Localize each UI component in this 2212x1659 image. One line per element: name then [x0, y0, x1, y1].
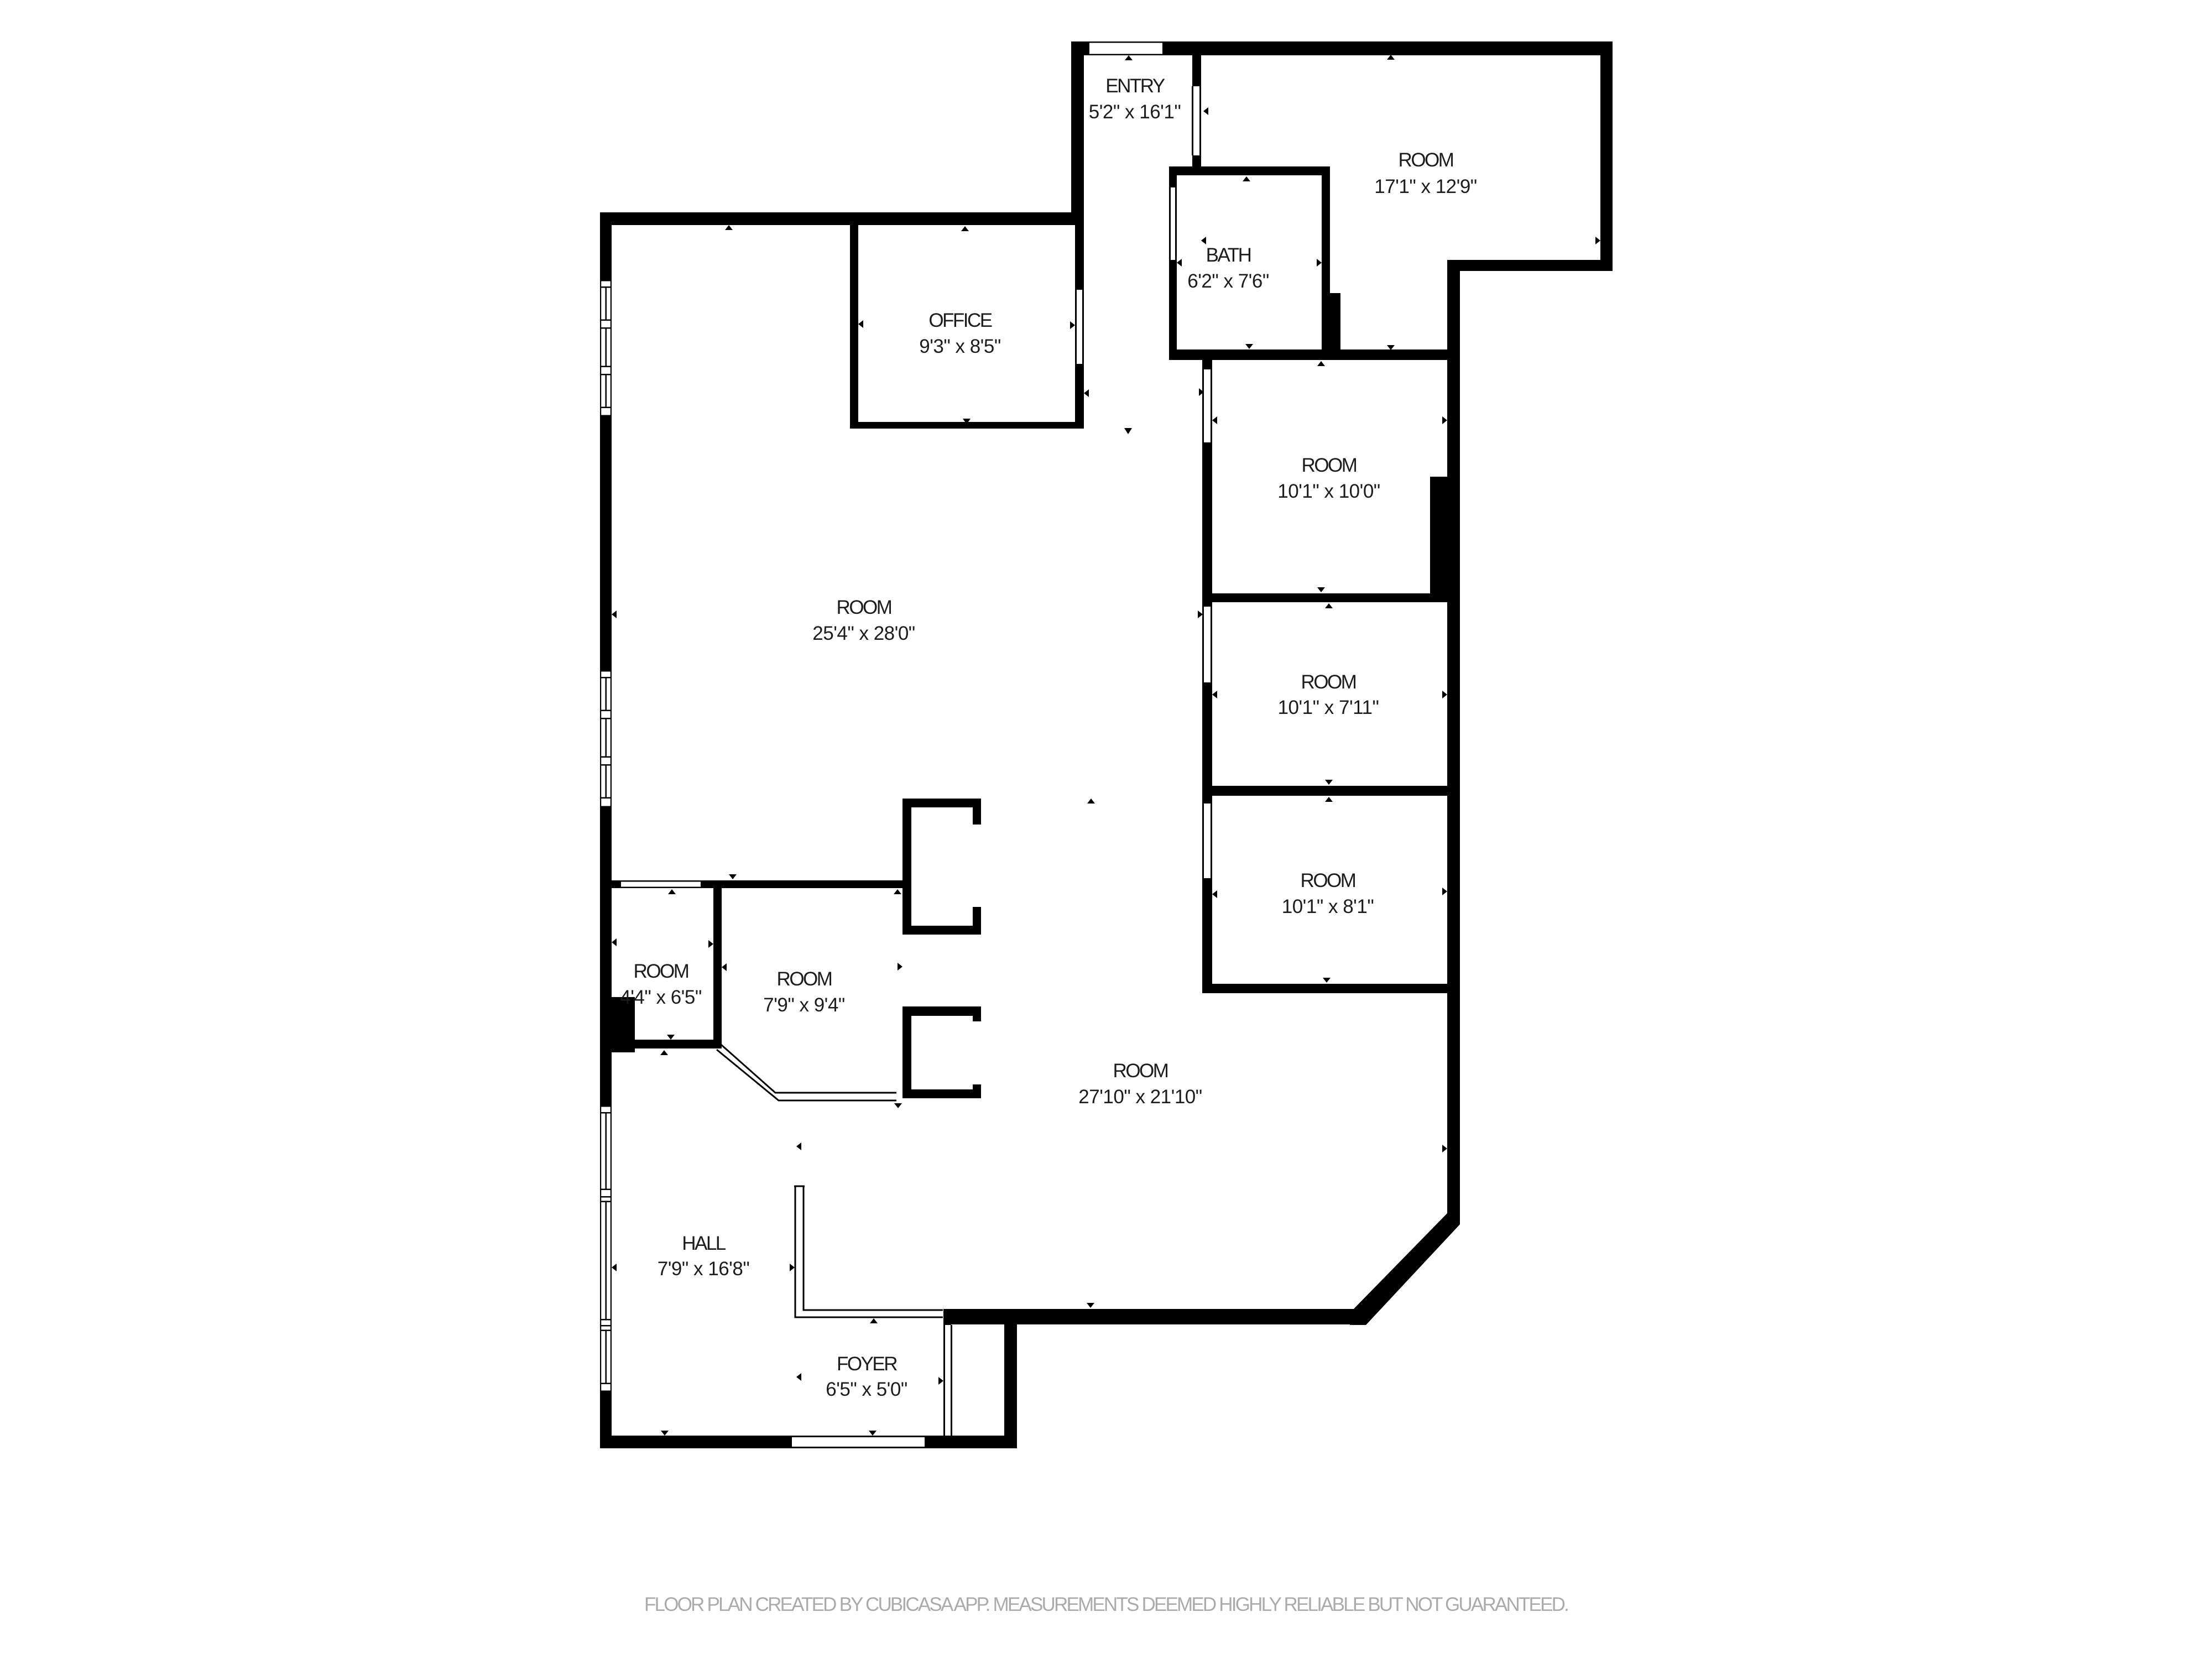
svg-text:ROOM: ROOM	[777, 968, 832, 990]
svg-text:ROOM: ROOM	[1399, 149, 1453, 171]
svg-text:7'9" x 9'4": 7'9" x 9'4"	[763, 994, 845, 1016]
svg-text:BATH: BATH	[1206, 244, 1251, 266]
svg-text:HALL: HALL	[682, 1233, 726, 1254]
svg-text:7'9" x 16'8": 7'9" x 16'8"	[658, 1258, 750, 1280]
svg-text:9'3" x 8'5": 9'3" x 8'5"	[919, 336, 1001, 357]
svg-text:25'4" x 28'0": 25'4" x 28'0"	[812, 623, 915, 644]
svg-text:10'1" x 7'11": 10'1" x 7'11"	[1278, 697, 1379, 718]
svg-text:5'2" x 16'1": 5'2" x 16'1"	[1089, 101, 1181, 123]
svg-text:ROOM: ROOM	[1301, 671, 1356, 693]
svg-text:FOYER: FOYER	[837, 1353, 897, 1375]
svg-text:ROOM: ROOM	[1301, 870, 1355, 891]
svg-text:10'1" x 8'1": 10'1" x 8'1"	[1282, 896, 1374, 917]
svg-text:ROOM: ROOM	[837, 597, 891, 618]
svg-text:6'5" x 5'0": 6'5" x 5'0"	[826, 1379, 907, 1400]
svg-text:10'1" x 10'0": 10'1" x 10'0"	[1277, 481, 1380, 502]
svg-text:ROOM: ROOM	[1113, 1060, 1168, 1082]
svg-text:27'10" x 21'10": 27'10" x 21'10"	[1078, 1086, 1202, 1108]
svg-text:ENTRY: ENTRY	[1105, 75, 1165, 97]
svg-text:ROOM: ROOM	[634, 961, 688, 982]
svg-text:ROOM: ROOM	[1302, 455, 1357, 476]
svg-text:4'4" x 6'5": 4'4" x 6'5"	[620, 987, 702, 1008]
svg-text:FLOOR PLAN CREATED BY CUBICASA: FLOOR PLAN CREATED BY CUBICASA APP. MEAS…	[644, 1594, 1568, 1615]
svg-text:OFFICE: OFFICE	[928, 310, 992, 331]
svg-text:6'2" x 7'6": 6'2" x 7'6"	[1187, 270, 1269, 292]
svg-text:17'1" x 12'9": 17'1" x 12'9"	[1374, 176, 1477, 197]
